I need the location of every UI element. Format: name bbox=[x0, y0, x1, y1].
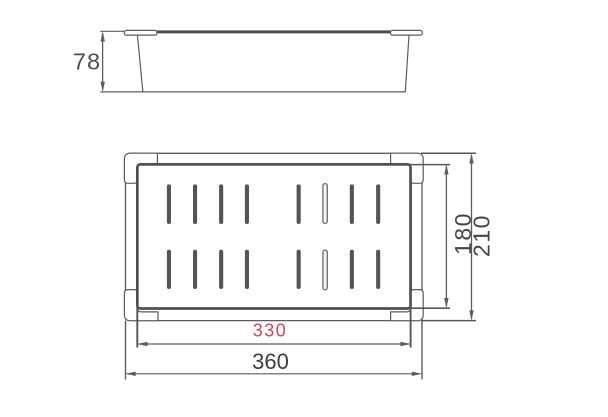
svg-text:360: 360 bbox=[252, 349, 289, 374]
svg-text:330: 330 bbox=[253, 321, 288, 341]
svg-text:210: 210 bbox=[469, 214, 495, 257]
svg-text:78: 78 bbox=[73, 49, 101, 75]
